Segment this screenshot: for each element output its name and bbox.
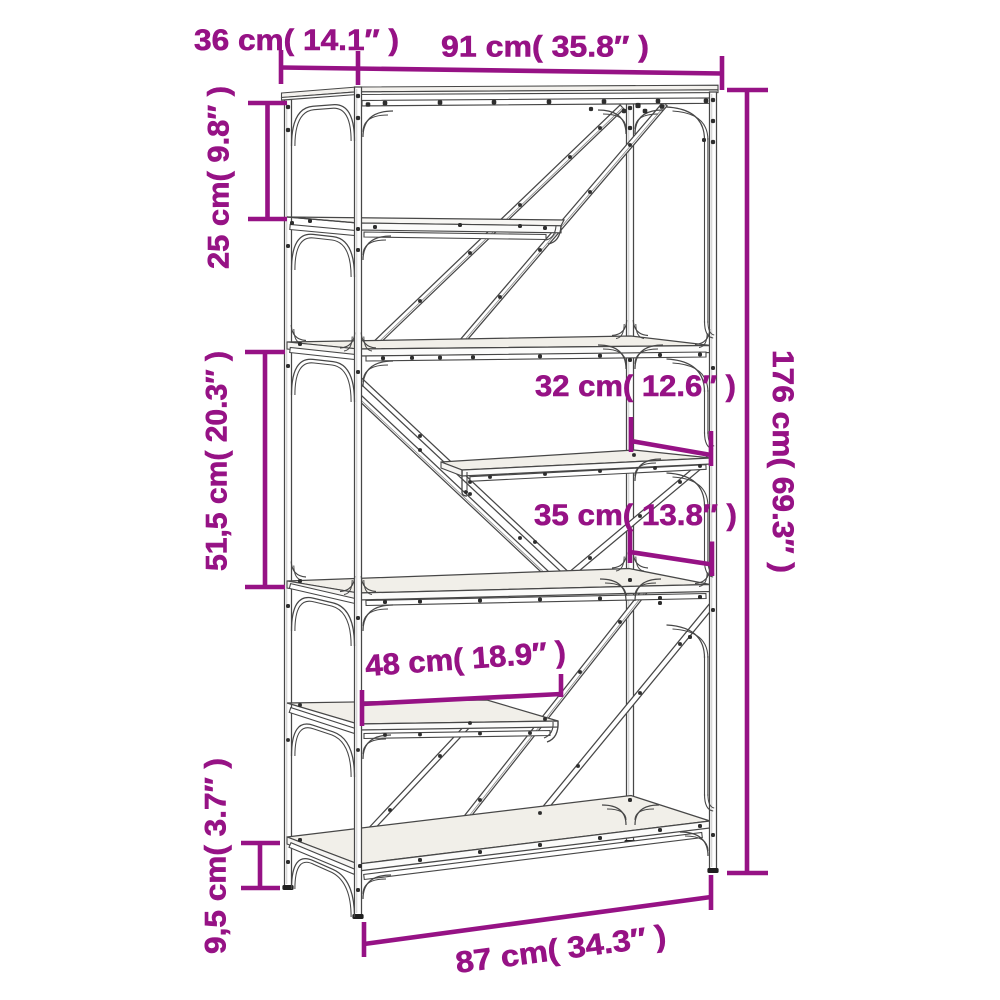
- svg-text:51,5 cm( 20.3″ ): 51,5 cm( 20.3″ ): [201, 351, 234, 571]
- svg-text:91 cm( 35.8″ ): 91 cm( 35.8″ ): [441, 31, 649, 64]
- svg-text:9,5 cm( 3.7″ ): 9,5 cm( 3.7″ ): [200, 758, 233, 954]
- svg-text:36 cm( 14.1″ ): 36 cm( 14.1″ ): [194, 24, 399, 57]
- svg-text:35 cm( 13.8″ ): 35 cm( 13.8″ ): [534, 499, 737, 532]
- svg-text:176 cm( 69.3″ ): 176 cm( 69.3″ ): [766, 350, 799, 573]
- svg-text:25 cm( 9.8″ ): 25 cm( 9.8″ ): [203, 86, 236, 269]
- svg-text:32 cm( 12.6″ ): 32 cm( 12.6″ ): [535, 370, 736, 403]
